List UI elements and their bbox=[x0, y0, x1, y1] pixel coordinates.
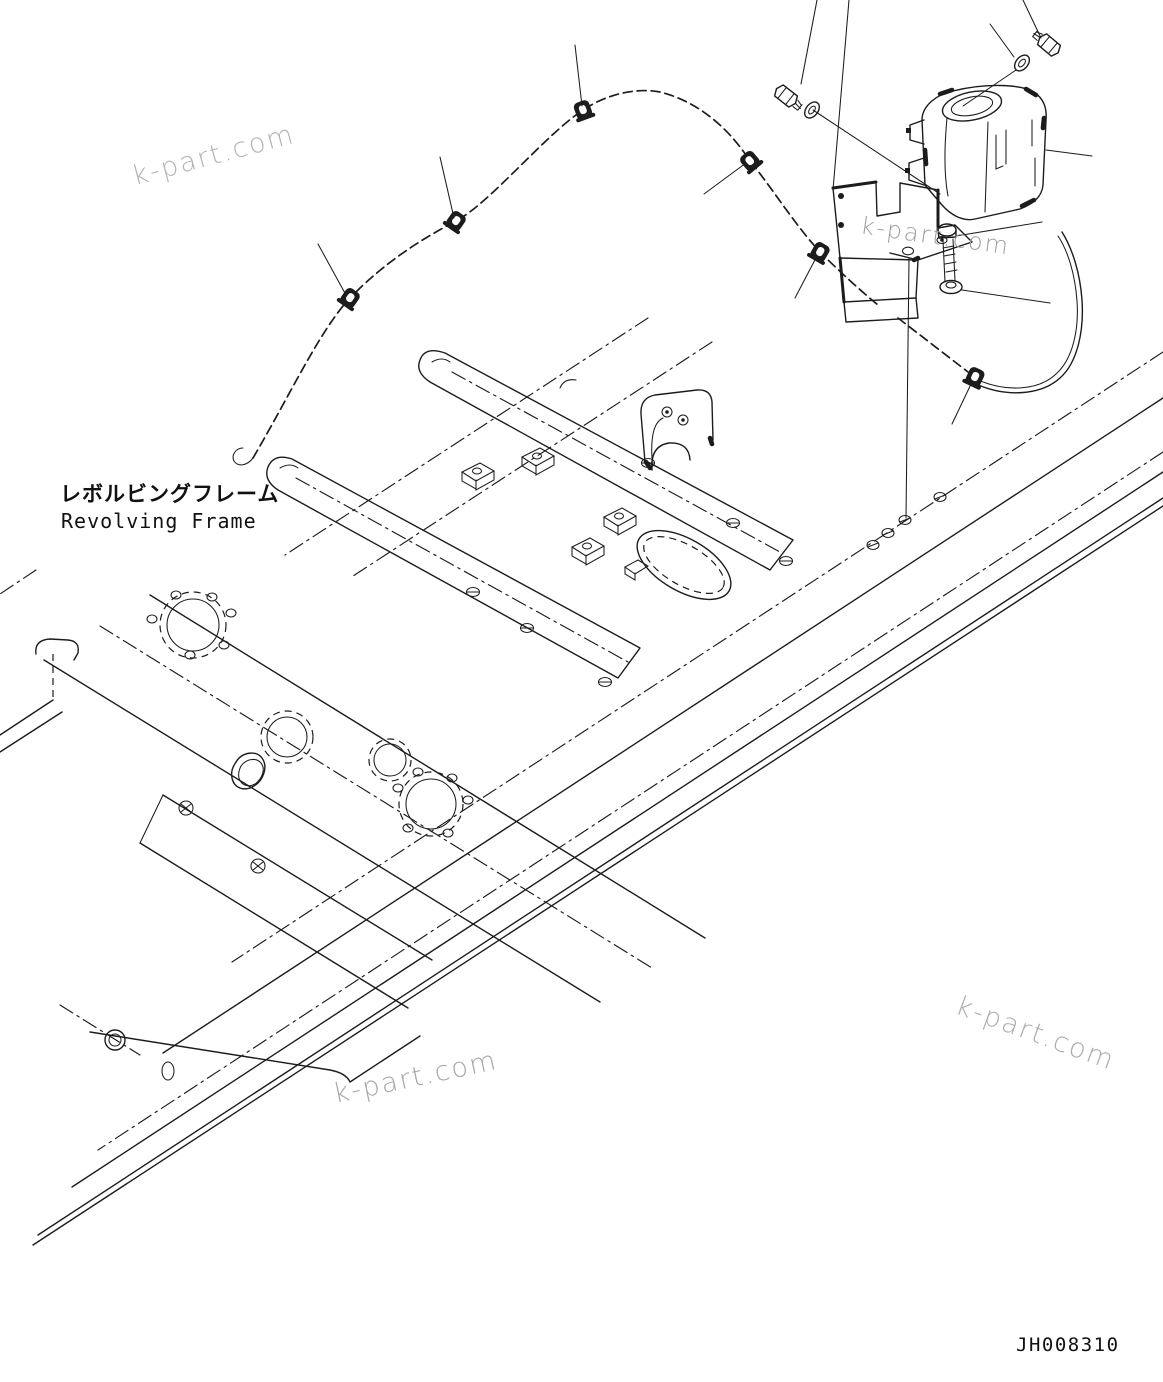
hose-clip-3 bbox=[571, 98, 596, 123]
mounting-bolt-top-right bbox=[1030, 27, 1063, 58]
tank-bolt-washer bbox=[940, 281, 962, 294]
washer-hose bbox=[253, 91, 878, 458]
deck-hole-circles bbox=[147, 591, 473, 837]
beam-block bbox=[522, 448, 554, 475]
frame-label-japanese: レボルビングフレーム bbox=[60, 478, 279, 508]
beam-block bbox=[462, 463, 494, 490]
diagram-drawing bbox=[0, 0, 1163, 1382]
washer-left bbox=[802, 99, 823, 121]
mounting-bolt-left bbox=[772, 83, 805, 113]
revolving-frame-structure bbox=[0, 318, 1163, 1245]
frame-label-english: Revolving Frame bbox=[61, 509, 257, 533]
leader-lines bbox=[318, 0, 1092, 518]
hose-clip-4 bbox=[737, 148, 765, 175]
beam-block bbox=[604, 508, 636, 535]
beam-block bbox=[625, 560, 648, 580]
hose-clip-6 bbox=[962, 365, 988, 391]
hose-clip-2 bbox=[442, 208, 469, 235]
washer-tank bbox=[905, 85, 1046, 219]
parts-diagram-page: レボルビングフレーム Revolving Frame JH008310 k-pa… bbox=[0, 0, 1163, 1382]
document-number: JH008310 bbox=[1016, 1334, 1120, 1356]
frame-bracket bbox=[641, 390, 713, 470]
beam-block bbox=[572, 538, 604, 565]
lower-left-plate bbox=[60, 795, 432, 1082]
